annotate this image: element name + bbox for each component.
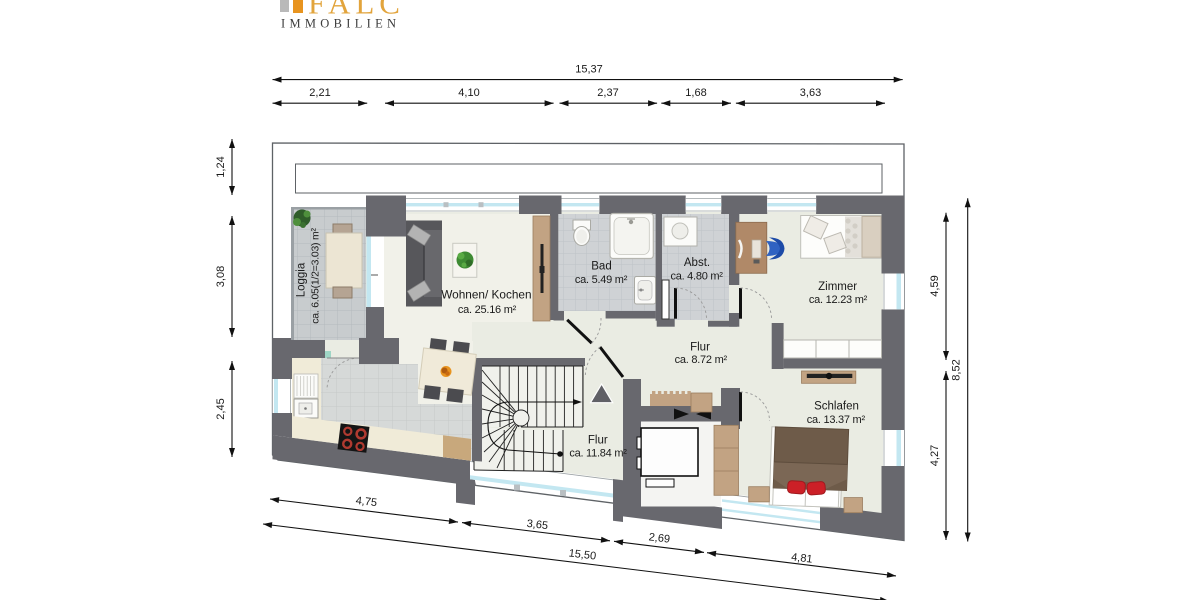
svg-text:Zimmer: Zimmer — [818, 281, 857, 293]
svg-text:1,68: 1,68 — [685, 87, 706, 99]
svg-text:ca. 6.05(1/2=3.03) m²: ca. 6.05(1/2=3.03) m² — [310, 228, 322, 324]
svg-text:2,45: 2,45 — [215, 398, 227, 419]
svg-text:Schlafen: Schlafen — [814, 401, 859, 413]
svg-text:ca. 25.16 m²: ca. 25.16 m² — [458, 304, 517, 316]
svg-text:Wohnen/ Kochen: Wohnen/ Kochen — [441, 288, 531, 302]
svg-text:ca. 13.37 m²: ca. 13.37 m² — [807, 414, 866, 426]
svg-text:4,27: 4,27 — [929, 445, 941, 466]
svg-text:4,10: 4,10 — [458, 87, 479, 99]
svg-text:ca. 8.72 m²: ca. 8.72 m² — [675, 354, 728, 366]
svg-text:3,08: 3,08 — [215, 266, 227, 287]
svg-text:IMMOBILIEN: IMMOBILIEN — [281, 17, 400, 31]
svg-text:Flur: Flur — [690, 342, 710, 354]
svg-text:Abst.: Abst. — [684, 257, 710, 269]
svg-text:3,63: 3,63 — [800, 87, 821, 99]
svg-text:2,21: 2,21 — [309, 87, 330, 99]
svg-text:ca. 4.80 m²: ca. 4.80 m² — [670, 271, 723, 283]
svg-text:ca. 5.49 m²: ca. 5.49 m² — [575, 274, 628, 286]
svg-text:8,52: 8,52 — [951, 359, 963, 380]
svg-text:4,59: 4,59 — [929, 275, 941, 296]
svg-text:Flur: Flur — [588, 435, 608, 447]
svg-text:15,37: 15,37 — [575, 64, 603, 76]
svg-text:1,24: 1,24 — [215, 156, 227, 177]
svg-text:ca. 12.23 m²: ca. 12.23 m² — [809, 294, 868, 306]
svg-text:Loggia: Loggia — [296, 262, 308, 297]
svg-text:ca. 11.84 m²: ca. 11.84 m² — [569, 448, 627, 460]
svg-text:2,37: 2,37 — [597, 87, 618, 99]
svg-text:Bad: Bad — [591, 261, 611, 273]
